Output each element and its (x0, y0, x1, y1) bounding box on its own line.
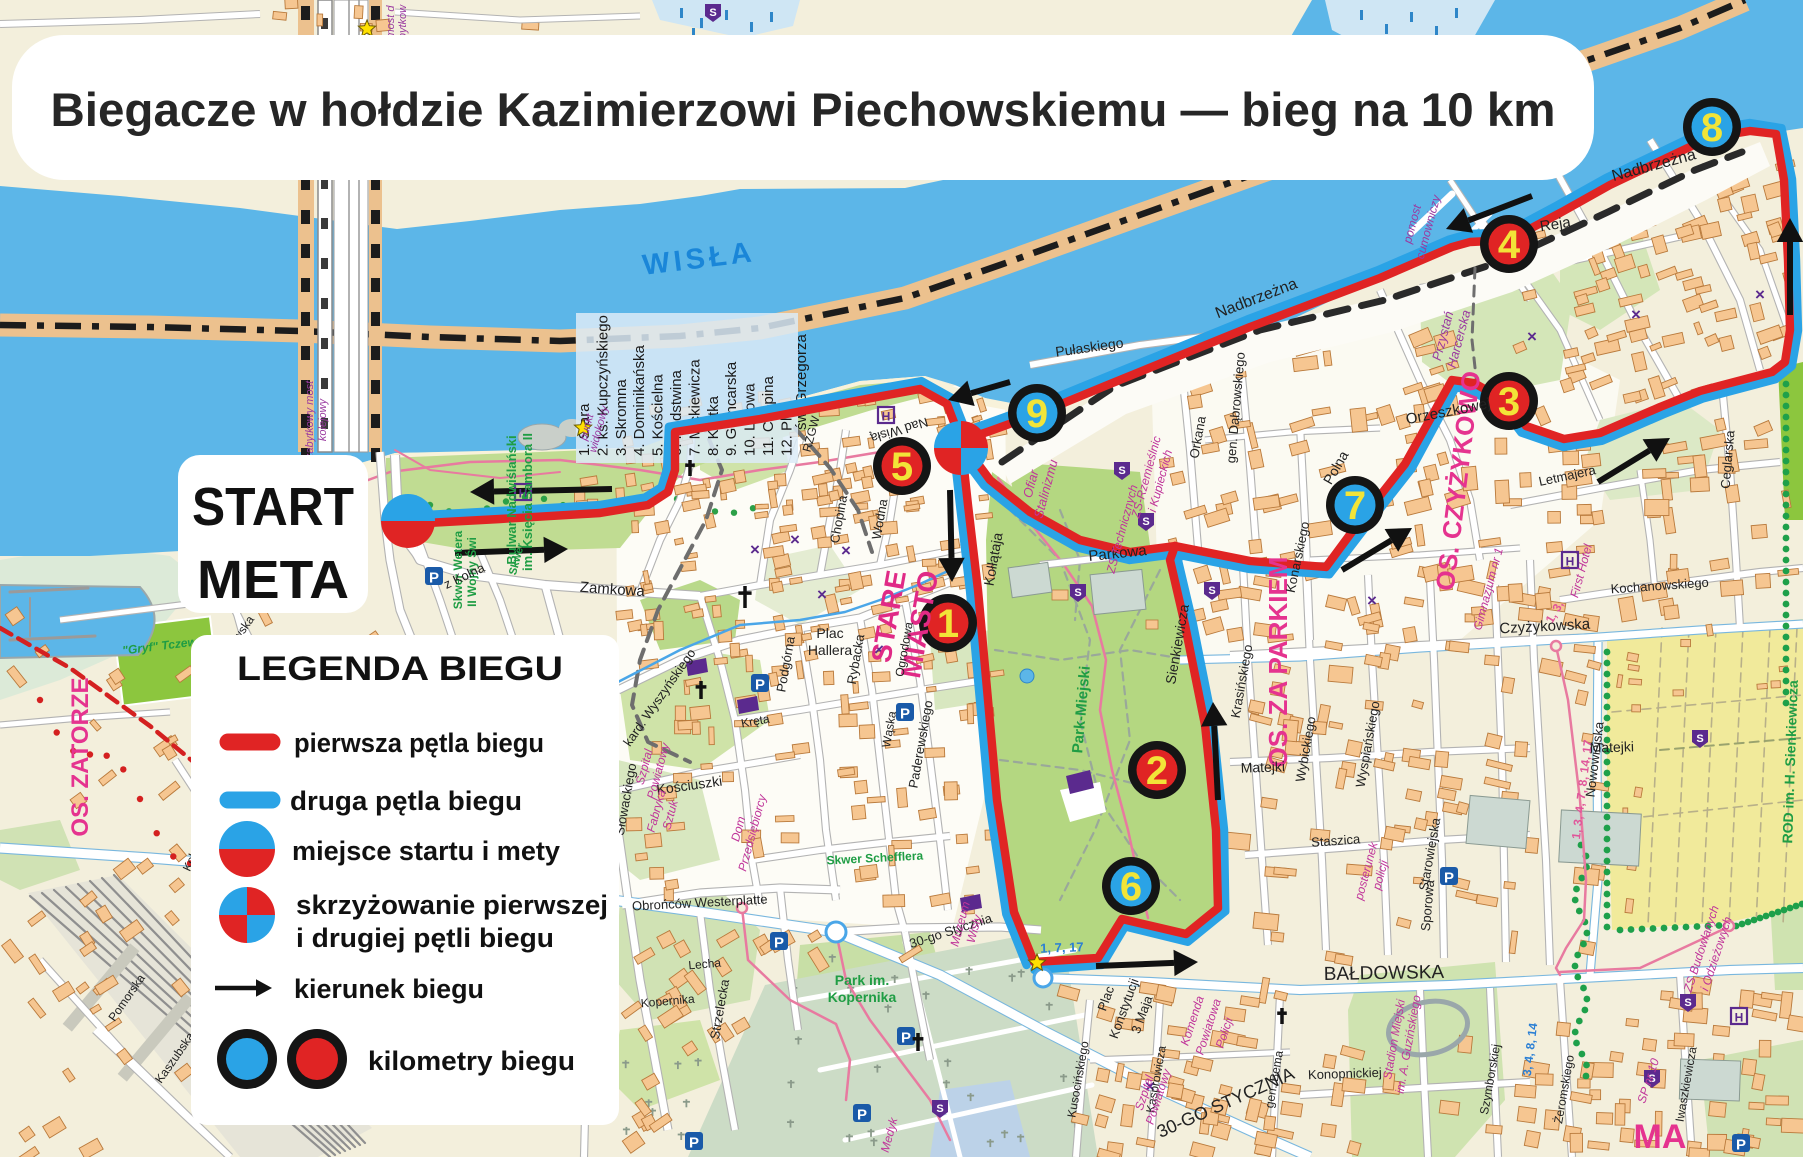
svg-text:×: × (841, 541, 851, 560)
svg-text:1: 1 (937, 602, 959, 646)
svg-text:Plac: Plac (816, 625, 843, 641)
svg-text:Matejki: Matejki (1240, 758, 1285, 776)
svg-text:×: × (1367, 591, 1377, 610)
svg-text:miejsce startu i mety: miejsce startu i mety (292, 836, 560, 866)
svg-text:H: H (1735, 1011, 1744, 1025)
svg-text:kierunek biegu: kierunek biegu (294, 974, 484, 1004)
svg-text:START: START (192, 477, 354, 537)
svg-text:P: P (755, 677, 765, 694)
svg-text:bytkow: bytkow (397, 4, 409, 39)
svg-text:1, 7, 17: 1, 7, 17 (1040, 939, 1084, 956)
svg-text:P: P (689, 1135, 699, 1152)
svg-text:Hallera: Hallera (808, 642, 853, 658)
svg-text:most d: most d (385, 5, 397, 39)
svg-text:5: 5 (891, 445, 913, 489)
svg-text:×: × (1631, 305, 1641, 324)
svg-text:3: 3 (1498, 380, 1520, 424)
svg-text:4. Dominikańska: 4. Dominikańska (631, 344, 648, 456)
svg-text:MA: MA (1634, 1118, 1687, 1156)
svg-text:6: 6 (1120, 865, 1142, 909)
svg-text:H: H (882, 410, 891, 424)
svg-text:S: S (1684, 997, 1691, 1009)
svg-text:kolejowy: kolejowy (317, 397, 329, 441)
svg-text:9. Garncarska: 9. Garncarska (723, 361, 740, 456)
svg-text:kilometry biegu: kilometry biegu (368, 1046, 575, 1076)
svg-text:skrzyżowanie pierwszej: skrzyżowanie pierwszej (296, 890, 608, 920)
svg-text:zabytkowy most: zabytkowy most (304, 380, 316, 460)
svg-text:BAŁDOWSKA: BAŁDOWSKA (1324, 962, 1445, 985)
svg-text:7. Mickiewicza: 7. Mickiewicza (686, 359, 703, 456)
svg-text:i drugiej pętli biegu: i drugiej pętli biegu (296, 923, 554, 953)
svg-text:LEGENDA BIEGU: LEGENDA BIEGU (237, 650, 563, 688)
svg-text:Park im.: Park im. (835, 972, 889, 988)
svg-text:S: S (1696, 733, 1703, 745)
svg-text:×: × (1527, 327, 1537, 346)
svg-text:×: × (1755, 285, 1765, 304)
svg-text:9: 9 (1026, 392, 1048, 436)
svg-text:S: S (1074, 587, 1081, 599)
svg-text:druga pętla biegu: druga pętla biegu (290, 786, 522, 816)
svg-text:Kopernika: Kopernika (828, 989, 897, 1005)
svg-text:Biegacze w hołdzie Kazimierzow: Biegacze w hołdzie Kazimierzowi Piechows… (51, 83, 1556, 136)
svg-text:P: P (901, 1030, 911, 1047)
svg-text:3. Skromna: 3. Skromna (613, 379, 630, 456)
svg-text:P: P (857, 1107, 867, 1124)
svg-text:8: 8 (1701, 106, 1723, 150)
svg-text:2: 2 (1146, 749, 1168, 793)
svg-text:META: META (197, 550, 349, 610)
svg-text:S: S (709, 7, 716, 19)
svg-text:7: 7 (1344, 484, 1366, 528)
svg-text:H: H (1566, 555, 1575, 569)
svg-text:P: P (429, 570, 439, 587)
svg-text:pierwsza pętla biegu: pierwsza pętla biegu (294, 728, 544, 758)
svg-text:Lecha: Lecha (688, 956, 722, 973)
svg-text:S: S (1208, 585, 1215, 597)
svg-text:×: × (790, 530, 800, 549)
svg-text:P: P (900, 706, 910, 723)
svg-text:×: × (817, 585, 827, 604)
svg-text:P: P (774, 935, 784, 952)
svg-text:S: S (1142, 516, 1149, 528)
svg-text:×: × (750, 540, 760, 559)
svg-text:4: 4 (1498, 223, 1521, 267)
svg-text:P: P (1736, 1137, 1746, 1154)
svg-text:S: S (1118, 465, 1125, 477)
svg-text:S: S (936, 1103, 943, 1115)
svg-text:Konopnickiej: Konopnickiej (1308, 1065, 1382, 1083)
svg-text:OS. ZATORZE: OS. ZATORZE (67, 677, 94, 836)
svg-text:P: P (1444, 870, 1454, 887)
